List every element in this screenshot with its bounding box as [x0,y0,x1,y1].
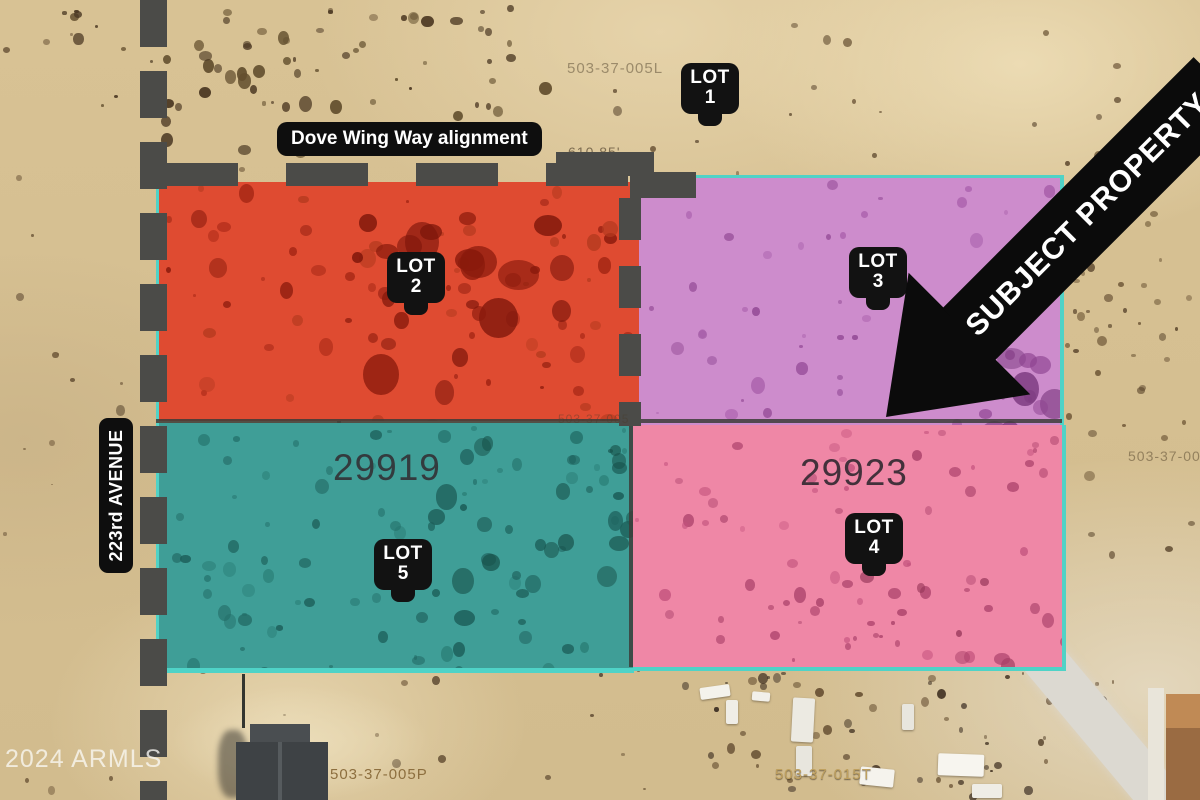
vegetation-dot [796,362,807,374]
vegetation-dot [763,251,772,260]
vegetation-dot [401,680,409,687]
vegetation-dot [199,87,211,98]
vegetation-dot [264,344,274,351]
vegetation-dot [798,621,802,624]
vegetation-dot [238,614,251,626]
vegetation-dot [811,85,816,90]
vegetation-dot [432,676,439,685]
vegetation-dot [788,786,796,792]
vegetation-dot [463,225,476,236]
vegetation-dot [203,328,216,338]
vegetation-dot [888,588,901,599]
vegetation-dot [855,692,863,698]
vegetation-dot [760,683,767,690]
vegetation-dot [482,479,488,484]
vegetation-dot [843,754,850,760]
vegetation-dot [659,589,670,601]
vegetation-dot [971,465,975,470]
vegetation-dot [70,378,75,382]
aerial-parcel-map: 29919 29923 610.85' 503-37-005L 503-37-0… [0,0,1200,800]
vegetation-dot [994,653,1010,665]
vegetation-dot [1186,295,1193,301]
vegetation-dot [232,495,237,499]
vegetation-dot [218,605,231,621]
vegetation-dot [707,356,717,365]
vegetation-dot [580,403,590,411]
vegetation-dot [454,268,460,273]
vegetation-dot [702,520,709,526]
vegetation-dot [428,509,445,524]
vegetation-dot [1032,442,1039,448]
vegetation-dot [237,67,248,81]
vegetation-dot [1030,603,1040,615]
vegetation-dot [917,583,925,592]
vegetation-dot [830,571,840,584]
vegetation-dot [454,610,475,626]
vegetation-dot [176,513,184,521]
vegetation-dot [599,673,603,678]
vegetation-dot [191,210,207,228]
vegetation-dot [1112,680,1115,683]
vegetation-dot [410,13,418,20]
vegetation-dot [964,651,975,663]
lot-1-badge: LOT 1 [681,63,739,114]
vegetation-dot [1095,682,1099,685]
vegetation-dot [475,102,480,108]
vegetation-dot [166,216,172,223]
vegetation-dot [487,59,492,65]
vegetation-dot [718,616,724,623]
vegetation-dot [121,47,126,51]
vegetation-dot [609,536,629,551]
vegetation-dot [485,28,492,36]
vegetation-dot [1025,460,1034,466]
vegetation-dot [611,516,619,526]
vegetation-dot [562,234,566,239]
vegetation-dot [873,633,879,638]
vegetation-dot [879,635,883,638]
parcel-number-center: 503-37-005 [558,412,629,426]
vegetation-dot [984,735,987,738]
vegetation-dot [486,379,492,386]
vegetation-dot [558,546,565,552]
vegetation-dot [298,196,309,204]
vegetation-dot [16,293,24,301]
vegetation-dot [276,625,283,630]
vegetation-dot [550,255,574,281]
vegetation-dot [798,242,804,250]
vegetation-dot [961,703,967,709]
lot-boundary-vertical [629,423,633,667]
vegetation-dot [770,631,780,641]
vegetation-dot [956,630,962,637]
vegetation-dot [1001,658,1015,671]
vegetation-dot [233,436,240,442]
vegetation-dot [1066,413,1072,419]
vegetation-dot [267,626,277,638]
armls-watermark: 2024 ARMLS [5,745,162,774]
vegetation-dot [498,260,539,290]
vegetation-dot [180,555,190,562]
vegetation-dot [742,307,748,313]
vegetation-dot [74,10,78,13]
vegetation-dot [369,241,383,252]
lot-1-word: LOT [681,68,739,88]
vegetation-dot [368,283,376,292]
vegetation-dot [299,96,312,112]
vegetation-dot [917,777,923,783]
vegetation-dot [526,338,538,351]
vegetation-dot [51,484,53,486]
vegetation-dot [240,647,245,651]
vegetation-dot [891,621,894,625]
vegetation-dot [381,338,397,350]
vegetation-dot [238,145,250,155]
vegetation-dot [980,578,989,586]
vegetation-dot [62,11,67,14]
neighbor-building-roof [1166,694,1200,728]
vegetation-dot [879,111,882,114]
vegetation-dot [299,558,312,568]
vegetation-dot [844,637,850,642]
vegetation-dot [1095,370,1100,376]
vegetation-dot [1122,424,1126,427]
vegetation-dot [552,186,562,199]
vegetation-dot [70,13,79,21]
vegetation-dot [109,776,113,781]
vegetation-dot [228,540,240,553]
vegetation-dot [878,197,883,201]
vegetation-dot [350,598,360,607]
vegetation-dot [536,351,546,358]
vegetation-dot [201,390,207,397]
lot-5-number: 5 [374,564,432,584]
vegetation-dot [758,673,768,684]
vegetation-dot [223,9,232,16]
vegetation-dot [872,153,877,159]
vegetation-dot [552,300,571,322]
vegetation-dot [312,519,320,529]
vegetation-dot [861,211,868,218]
vegetation-dot [635,518,639,523]
vegetation-dot [394,526,406,540]
vegetation-dot [390,521,401,531]
vegetation-dot [838,300,842,304]
vegetation-dot [282,102,290,111]
vegetation-dot [453,111,462,121]
vegetation-dot [1088,532,1095,537]
vegetation-dot [250,85,257,94]
vegetation-dot [829,443,840,452]
vegetation-dot [550,237,559,246]
vegetation-dot [1033,448,1038,453]
lot-4-number: 4 [845,538,903,558]
vegetation-dot [263,569,275,583]
vegetation-dot [897,609,907,617]
vegetation-dot [223,17,230,25]
house-roof-ridge [278,742,282,800]
vegetation-dot [590,714,594,717]
lot-4-badge: LOT 4 [845,513,903,564]
vegetation-dot [328,10,332,14]
vegetation-dot [416,612,428,623]
vegetation-dot [509,576,521,590]
vegetation-dot [558,320,567,331]
vegetation-dot [271,101,274,105]
vegetation-dot [714,707,718,712]
vegetation-dot [204,575,211,582]
vegetation-dot [540,199,548,206]
vegetation-dot [599,475,609,486]
vegetation-dot [928,681,932,685]
vegetation-dot [469,332,475,339]
vegetation-dot [454,374,458,379]
vegetation-dot [815,688,824,697]
vegetation-dot [512,458,522,470]
vegetation-dot [49,440,55,446]
vegetation-dot [315,479,329,494]
vegetation-dot [708,498,718,507]
vegetation-dot [965,486,976,498]
vegetation-dot [423,61,427,65]
vegetation-dot [454,666,465,673]
vegetation-dot [949,784,954,788]
vegetation-dot [1027,449,1034,456]
vegetation-dot [567,455,579,465]
vegetation-dot [194,40,204,51]
vegetation-dot [353,48,359,53]
vegetation-dot [507,40,512,47]
vegetation-dot [70,33,73,36]
vegetation-dot [1020,547,1028,556]
vegetation-dot [791,23,798,28]
vegetation-dot [214,64,223,73]
vegetation-dot [665,610,674,620]
vegetation-dot [330,100,341,114]
vegetation-dot [505,273,521,287]
vehicle [972,784,1002,798]
vegetation-dot [793,682,800,688]
vegetation-dot [261,556,268,565]
vegetation-dot [779,521,789,530]
vegetation-dot [608,511,623,531]
vegetation-dot [480,10,484,14]
vegetation-dot [573,386,584,396]
vegetation-dot [789,113,792,117]
vegetation-dot [712,762,720,769]
vegetation-dot [369,14,377,21]
vegetation-dot [799,345,803,348]
vegetation-dot [920,586,931,598]
vegetation-dot [823,35,831,45]
vegetation-dot [921,697,929,707]
vegetation-dot [695,140,698,143]
vegetation-dot [716,635,725,644]
vegetation-dot [542,362,550,368]
vegetation-dot [792,658,796,662]
vegetation-dot [748,677,757,685]
vegetation-dot [656,412,659,415]
vegetation-dot [280,282,293,299]
parcel-number-southeast: 503-37-015T [775,766,872,783]
vegetation-dot [1043,30,1049,36]
vegetation-dot [837,389,843,396]
vegetation-dot [534,215,563,237]
vegetation-dot [523,282,528,287]
lot-3-word: LOT [849,252,907,272]
parcel-number-east: 503-37-005F [1128,448,1200,464]
vegetation-dot [964,588,970,592]
vegetation-dot [1007,482,1019,492]
vegetation-dot [472,306,487,321]
vegetation-dot [857,598,863,605]
vegetation-dot [1084,471,1095,481]
vegetation-dot [556,483,571,500]
vegetation-dot [984,765,989,770]
vegetation-dot [507,5,514,12]
vegetation-dot [1165,546,1173,552]
vegetation-dot [1141,283,1147,288]
vegetation-dot [95,25,99,28]
vegetation-dot [740,526,746,532]
vegetation-dot [1040,389,1064,419]
vehicle [726,700,738,724]
vegetation-dot [458,257,469,268]
vegetation-dot [530,266,540,274]
vegetation-dot [438,755,446,763]
vegetation-dot [486,103,491,110]
vegetation-dot [294,69,301,78]
vegetation-dot [826,234,831,240]
vegetation-dot [613,106,622,117]
vegetation-dot [378,631,387,643]
vegetation-dot [751,750,761,759]
house [236,742,328,800]
vegetation-dot [1097,336,1107,346]
vegetation-dot [491,609,499,615]
vegetation-dot [698,330,707,339]
vegetation-dot [587,234,601,250]
vegetation-dot [525,575,541,593]
vegetation-dot [363,354,399,395]
vegetation-dot [1005,675,1010,679]
street-label-223rd-avenue: 223rd AVENUE [99,418,133,573]
vegetation-dot [52,352,59,359]
parcel-number-southwest: 503-37-005P [330,766,428,783]
vegetation-dot [1044,759,1049,764]
vegetation-dot [453,642,465,657]
vegetation-dot [283,37,291,43]
vegetation-dot [1154,299,1160,305]
vegetation-dot [460,250,484,280]
vegetation-dot [120,382,123,385]
vegetation-dot [316,28,324,34]
vegetation-dot [1108,324,1112,327]
vegetation-dot [408,12,419,24]
vegetation-dot [519,631,531,644]
vegetation-dot [286,394,294,401]
vegetation-dot [518,619,526,626]
vegetation-dot [1109,551,1115,559]
vegetation-dot [649,306,654,312]
vegetation-dot [925,506,932,515]
lot-2-word: LOT [387,257,445,277]
vegetation-dot [187,658,200,673]
vegetation-dot [922,650,932,660]
vegetation-dot [699,487,710,496]
vegetation-dot [544,542,559,559]
vegetation-dot [959,727,964,732]
vegetation-dot [242,584,254,597]
vegetation-dot [293,57,297,62]
vehicle [752,691,771,702]
vegetation-dot [265,522,269,527]
vegetation-dot [223,456,233,465]
vegetation-dot [1175,327,1179,331]
vegetation-dot [224,614,236,629]
vehicle [938,753,985,777]
vegetation-dot [689,282,697,292]
vegetation-dot [387,430,392,434]
vegetation-dot [359,41,366,48]
vegetation-dot [569,455,576,464]
vegetation-dot [990,770,993,772]
vegetation-dot [114,95,118,98]
vegetation-dot [479,298,518,338]
vegetation-dot [421,16,433,27]
lot-1-number: 1 [681,88,739,108]
vegetation-dot [242,613,247,616]
vegetation-dot [505,525,513,534]
vegetation-dot [395,78,399,81]
vegetation-dot [682,682,689,691]
vegetation-dot [835,508,843,514]
vegetation-dot [664,462,668,466]
vegetation-dot [740,731,746,736]
vegetation-dot [853,636,858,641]
vegetation-dot [420,224,443,240]
vegetation-dot [506,54,516,63]
vegetation-dot [203,59,215,74]
vegetation-dot [239,184,254,203]
vegetation-dot [724,233,734,241]
vegetation-dot [378,508,385,517]
vegetation-dot [459,212,476,225]
vegetation-dot [493,106,504,117]
vegetation-dot [621,753,624,756]
vegetation-dot [535,539,546,551]
vegetation-dot [450,17,463,26]
vegetation-dot [1188,521,1195,526]
vegetation-dot [440,232,444,236]
vegetation-dot [368,333,378,343]
vegetation-dot [869,704,877,712]
vegetation-dot [477,517,492,532]
vegetation-dot [289,247,297,256]
vegetation-dot [570,431,583,444]
vegetation-dot [944,717,949,721]
vegetation-dot [622,428,626,433]
vegetation-dot [370,430,382,440]
vegetation-dot [253,65,265,78]
vegetation-dot [841,429,852,438]
vegetation-dot [675,478,683,485]
vegetation-dot [682,522,688,530]
vegetation-dot [597,566,617,587]
vegetation-dot [462,492,467,496]
address-label-29923: 29923 [800,452,908,494]
vegetation-dot [506,311,520,328]
